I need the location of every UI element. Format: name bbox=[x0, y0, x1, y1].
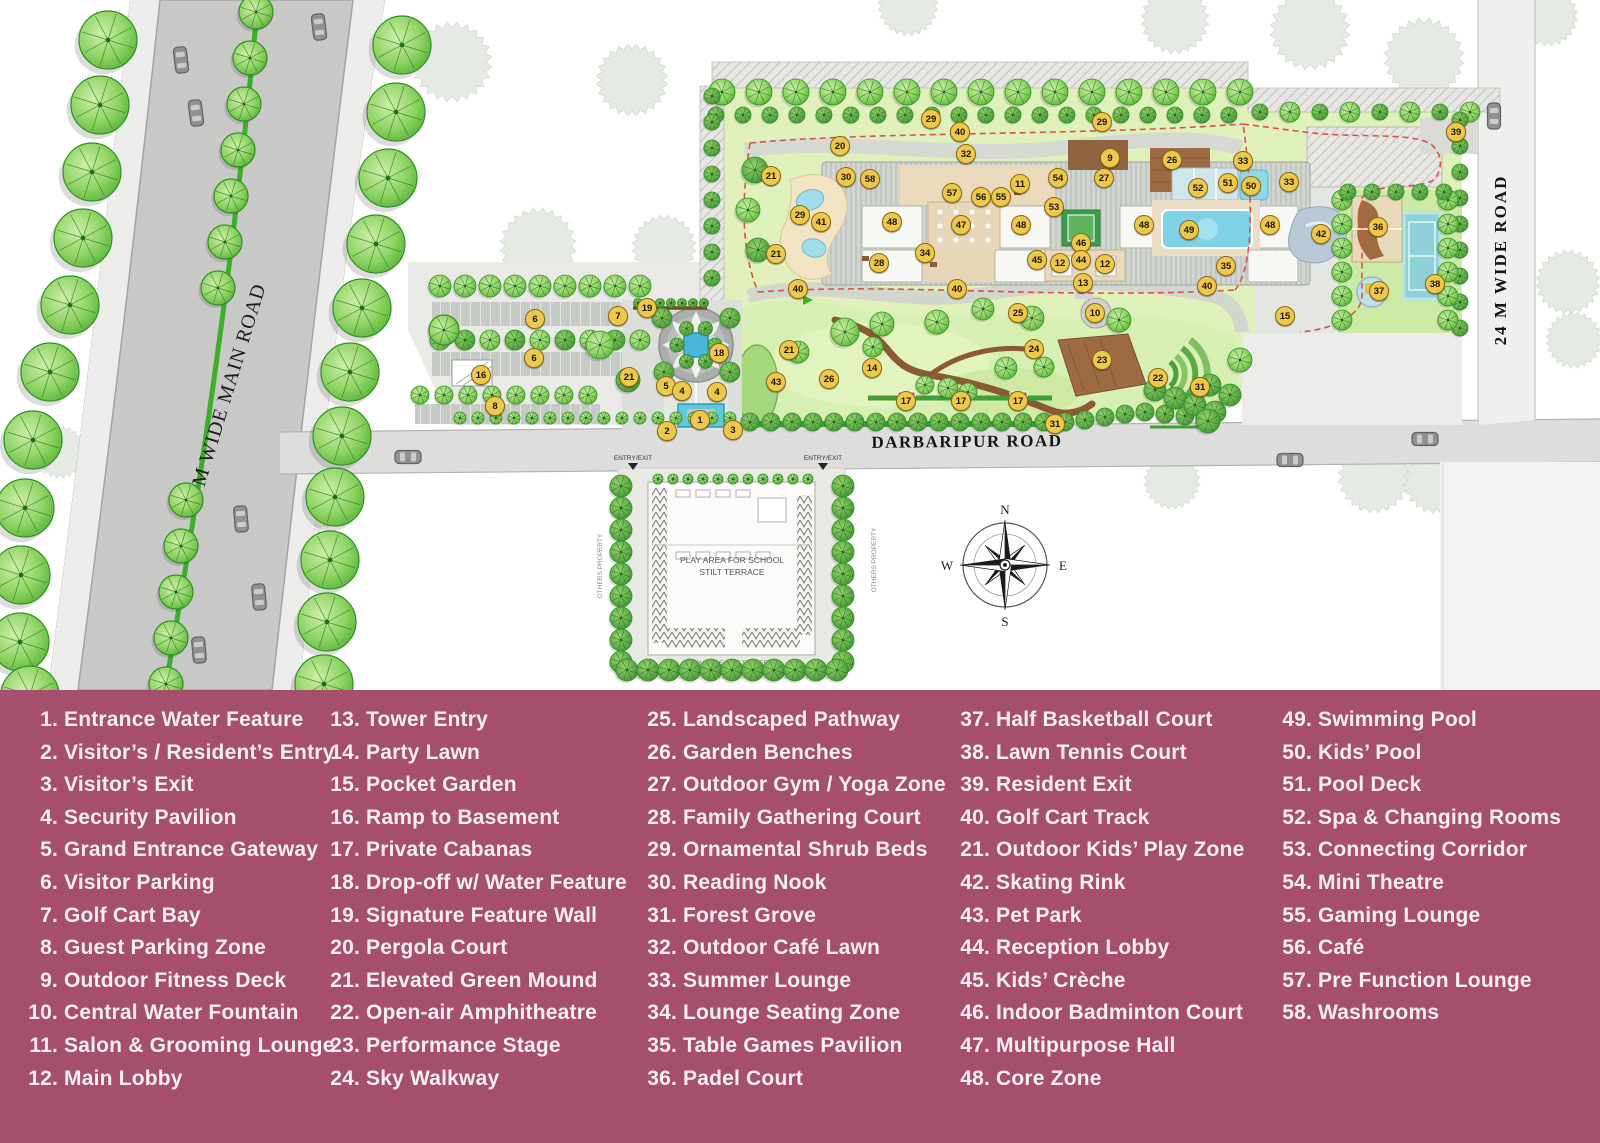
legend-item: 36.Padel Court bbox=[643, 1063, 956, 1096]
legend-item-number: 38. bbox=[956, 737, 990, 770]
legend-column-2: 13.Tower Entry14.Party Lawn15.Pocket Gar… bbox=[326, 704, 643, 1143]
legend-item-number: 43. bbox=[956, 900, 990, 933]
legend-item: 21.Elevated Green Mound bbox=[326, 965, 643, 998]
legend-item: 31.Forest Grove bbox=[643, 900, 956, 933]
site-plan-page: 60 M WIDE MAIN ROAD DARBARIPUR ROAD 24 M… bbox=[0, 0, 1600, 1143]
legend-item: 35.Table Games Pavilion bbox=[643, 1030, 956, 1063]
legend-item-label: Ramp to Basement bbox=[366, 802, 559, 835]
legend: 1.Entrance Water Feature2.Visitor’s / Re… bbox=[0, 690, 1600, 1143]
darbaripur-road-label: DARBARIPUR ROAD bbox=[871, 431, 1062, 452]
legend-item: 4.Security Pavilion bbox=[24, 802, 326, 835]
legend-item: 19.Signature Feature Wall bbox=[326, 900, 643, 933]
legend-item-label: Café bbox=[1318, 932, 1364, 965]
legend-item: 22.Open-air Amphitheatre bbox=[326, 997, 643, 1030]
legend-item-number: 2. bbox=[24, 737, 58, 770]
legend-item-number: 53. bbox=[1278, 834, 1312, 867]
legend-item-label: Garden Benches bbox=[683, 737, 853, 770]
legend-item-number: 22. bbox=[326, 997, 360, 1030]
legend-item-number: 36. bbox=[643, 1063, 677, 1096]
legend-item: 58.Washrooms bbox=[1278, 997, 1558, 1030]
legend-item-number: 37. bbox=[956, 704, 990, 737]
legend-item: 43.Pet Park bbox=[956, 900, 1278, 933]
legend-item: 27.Outdoor Gym / Yoga Zone bbox=[643, 769, 956, 802]
legend-item-label: Salon & Grooming Lounge bbox=[64, 1030, 335, 1063]
legend-item-number: 32. bbox=[643, 932, 677, 965]
others-property-label-west: OTHERS PROPERTY bbox=[597, 533, 604, 598]
legend-item: 45.Kids’ Crèche bbox=[956, 965, 1278, 998]
legend-item: 9.Outdoor Fitness Deck bbox=[24, 965, 326, 998]
legend-item-number: 42. bbox=[956, 867, 990, 900]
legend-item-number: 18. bbox=[326, 867, 360, 900]
legend-item-label: Outdoor Gym / Yoga Zone bbox=[683, 769, 946, 802]
legend-item: 21.Outdoor Kids’ Play Zone bbox=[956, 834, 1278, 867]
legend-item-number: 25. bbox=[643, 704, 677, 737]
legend-item-number: 28. bbox=[643, 802, 677, 835]
legend-item-label: Grand Entrance Gateway bbox=[64, 834, 318, 867]
legend-item-number: 58. bbox=[1278, 997, 1312, 1030]
legend-item-number: 5. bbox=[24, 834, 58, 867]
legend-item-label: Sky Walkway bbox=[366, 1063, 499, 1096]
legend-item-label: Summer Lounge bbox=[683, 965, 851, 998]
legend-item-number: 16. bbox=[326, 802, 360, 835]
compass-w: W bbox=[941, 558, 954, 573]
entry-exit-label-east: ENTRY/EXIT bbox=[804, 455, 842, 462]
legend-item-label: Kids’ Crèche bbox=[996, 965, 1126, 998]
legend-item-number: 49. bbox=[1278, 704, 1312, 737]
legend-item-label: Family Gathering Court bbox=[683, 802, 921, 835]
legend-item-label: Golf Cart Track bbox=[996, 802, 1150, 835]
legend-item-label: Pool Deck bbox=[1318, 769, 1421, 802]
legend-item-label: Outdoor Café Lawn bbox=[683, 932, 880, 965]
legend-item-label: Pocket Garden bbox=[366, 769, 517, 802]
legend-column-5: 49.Swimming Pool50.Kids’ Pool51.Pool Dec… bbox=[1278, 704, 1558, 1143]
legend-item-label: Visitor’s Exit bbox=[64, 769, 194, 802]
legend-item: 52.Spa & Changing Rooms bbox=[1278, 802, 1558, 835]
legend-item-number: 3. bbox=[24, 769, 58, 802]
legend-item-number: 31. bbox=[643, 900, 677, 933]
legend-item: 23.Performance Stage bbox=[326, 1030, 643, 1063]
legend-item-number: 45. bbox=[956, 965, 990, 998]
legend-item-label: Skating Rink bbox=[996, 867, 1126, 900]
legend-item: 12.Main Lobby bbox=[24, 1063, 326, 1096]
legend-item: 20.Pergola Court bbox=[326, 932, 643, 965]
legend-item: 8.Guest Parking Zone bbox=[24, 932, 326, 965]
legend-item-label: Elevated Green Mound bbox=[366, 965, 598, 998]
legend-item-number: 56. bbox=[1278, 932, 1312, 965]
legend-item: 47.Multipurpose Hall bbox=[956, 1030, 1278, 1063]
legend-item-number: 51. bbox=[1278, 769, 1312, 802]
site-plan-svg: 60 M WIDE MAIN ROAD DARBARIPUR ROAD 24 M… bbox=[0, 0, 1600, 690]
legend-item: 53.Connecting Corridor bbox=[1278, 834, 1558, 867]
legend-item-label: Pet Park bbox=[996, 900, 1082, 933]
legend-item-label: Reception Lobby bbox=[996, 932, 1169, 965]
legend-item-number: 9. bbox=[24, 965, 58, 998]
legend-item: 37.Half Basketball Court bbox=[956, 704, 1278, 737]
legend-item-label: Forest Grove bbox=[683, 900, 816, 933]
legend-item: 24.Sky Walkway bbox=[326, 1063, 643, 1096]
legend-item: 33.Summer Lounge bbox=[643, 965, 956, 998]
legend-item-label: Landscaped Pathway bbox=[683, 704, 900, 737]
legend-item-label: Drop-off w/ Water Feature bbox=[366, 867, 627, 900]
legend-item: 42.Skating Rink bbox=[956, 867, 1278, 900]
legend-item-label: Private Cabanas bbox=[366, 834, 532, 867]
legend-item: 10.Central Water Fountain bbox=[24, 997, 326, 1030]
legend-item-label: Table Games Pavilion bbox=[683, 1030, 903, 1063]
legend-item-number: 12. bbox=[24, 1063, 58, 1096]
legend-item: 18.Drop-off w/ Water Feature bbox=[326, 867, 643, 900]
side-road-label: 24 M WIDE ROAD bbox=[1491, 175, 1510, 346]
legend-item-label: Ornamental Shrub Beds bbox=[683, 834, 928, 867]
legend-item-number: 50. bbox=[1278, 737, 1312, 770]
legend-item: 38.Lawn Tennis Court bbox=[956, 737, 1278, 770]
legend-column-4: 37.Half Basketball Court38.Lawn Tennis C… bbox=[956, 704, 1278, 1143]
legend-item-number: 30. bbox=[643, 867, 677, 900]
legend-item-number: 44. bbox=[956, 932, 990, 965]
legend-column-3: 25.Landscaped Pathway26.Garden Benches27… bbox=[643, 704, 956, 1143]
legend-item-label: Signature Feature Wall bbox=[366, 900, 597, 933]
legend-item-label: Party Lawn bbox=[366, 737, 480, 770]
legend-item-label: Open-air Amphitheatre bbox=[366, 997, 597, 1030]
legend-item: 48.Core Zone bbox=[956, 1063, 1278, 1096]
legend-item-label: Lounge Seating Zone bbox=[683, 997, 900, 1030]
legend-item-label: Connecting Corridor bbox=[1318, 834, 1527, 867]
compass-n: N bbox=[1000, 502, 1010, 517]
legend-item: 49.Swimming Pool bbox=[1278, 704, 1558, 737]
legend-item-number: 4. bbox=[24, 802, 58, 835]
legend-item: 34.Lounge Seating Zone bbox=[643, 997, 956, 1030]
legend-item-number: 27. bbox=[643, 769, 677, 802]
legend-item: 28.Family Gathering Court bbox=[643, 802, 956, 835]
legend-item: 5.Grand Entrance Gateway bbox=[24, 834, 326, 867]
legend-item-label: Outdoor Fitness Deck bbox=[64, 965, 286, 998]
legend-item-label: Reading Nook bbox=[683, 867, 827, 900]
legend-item-number: 23. bbox=[326, 1030, 360, 1063]
legend-item-number: 52. bbox=[1278, 802, 1312, 835]
legend-item: 16.Ramp to Basement bbox=[326, 802, 643, 835]
legend-item-number: 20. bbox=[326, 932, 360, 965]
legend-item-label: Half Basketball Court bbox=[996, 704, 1213, 737]
compass-s: S bbox=[1001, 614, 1008, 629]
legend-item-label: Washrooms bbox=[1318, 997, 1439, 1030]
legend-item-label: Security Pavilion bbox=[64, 802, 237, 835]
legend-item-label: Multipurpose Hall bbox=[996, 1030, 1176, 1063]
compass-e: E bbox=[1059, 558, 1067, 573]
legend-item-number: 34. bbox=[643, 997, 677, 1030]
legend-item: 39.Resident Exit bbox=[956, 769, 1278, 802]
legend-item: 55.Gaming Lounge bbox=[1278, 900, 1558, 933]
legend-item-number: 54. bbox=[1278, 867, 1312, 900]
legend-item-label: Pergola Court bbox=[366, 932, 507, 965]
legend-item-number: 46. bbox=[956, 997, 990, 1030]
legend-item-number: 33. bbox=[643, 965, 677, 998]
legend-item-label: Core Zone bbox=[996, 1063, 1102, 1096]
legend-item-number: 13. bbox=[326, 704, 360, 737]
legend-item: 17.Private Cabanas bbox=[326, 834, 643, 867]
legend-item-number: 24. bbox=[326, 1063, 360, 1096]
legend-item-number: 10. bbox=[24, 997, 58, 1030]
legend-item: 51.Pool Deck bbox=[1278, 769, 1558, 802]
legend-item-label: Performance Stage bbox=[366, 1030, 561, 1063]
legend-item-number: 47. bbox=[956, 1030, 990, 1063]
legend-item: 7.Golf Cart Bay bbox=[24, 900, 326, 933]
legend-item-number: 11. bbox=[24, 1030, 58, 1063]
legend-item: 54.Mini Theatre bbox=[1278, 867, 1558, 900]
legend-item: 40.Golf Cart Track bbox=[956, 802, 1278, 835]
legend-item-label: Tower Entry bbox=[366, 704, 488, 737]
legend-item: 57.Pre Function Lounge bbox=[1278, 965, 1558, 998]
podium-building bbox=[780, 140, 1310, 299]
legend-item-label: Main Lobby bbox=[64, 1063, 183, 1096]
legend-item-number: 6. bbox=[24, 867, 58, 900]
legend-item: 44.Reception Lobby bbox=[956, 932, 1278, 965]
legend-item-label: Pre Function Lounge bbox=[1318, 965, 1532, 998]
legend-item: 3.Visitor’s Exit bbox=[24, 769, 326, 802]
legend-item: 50.Kids’ Pool bbox=[1278, 737, 1558, 770]
legend-item-number: 55. bbox=[1278, 900, 1312, 933]
legend-item: 13.Tower Entry bbox=[326, 704, 643, 737]
legend-item: 14.Party Lawn bbox=[326, 737, 643, 770]
legend-item-number: 26. bbox=[643, 737, 677, 770]
legend-item-label: Padel Court bbox=[683, 1063, 803, 1096]
legend-item: 46.Indoor Badminton Court bbox=[956, 997, 1278, 1030]
legend-item-label: Lawn Tennis Court bbox=[996, 737, 1187, 770]
legend-item: 11.Salon & Grooming Lounge bbox=[24, 1030, 326, 1063]
legend-item-number: 21. bbox=[326, 965, 360, 998]
legend-column-1: 1.Entrance Water Feature2.Visitor’s / Re… bbox=[24, 704, 326, 1143]
legend-item-label: Guest Parking Zone bbox=[64, 932, 266, 965]
legend-item-number: 40. bbox=[956, 802, 990, 835]
school-label-line2: STILT TERRACE bbox=[699, 567, 765, 577]
legend-item-label: Mini Theatre bbox=[1318, 867, 1444, 900]
legend-item-label: Swimming Pool bbox=[1318, 704, 1477, 737]
legend-item: 29.Ornamental Shrub Beds bbox=[643, 834, 956, 867]
legend-item-label: Central Water Fountain bbox=[64, 997, 299, 1030]
legend-item-number: 35. bbox=[643, 1030, 677, 1063]
legend-item: 56.Café bbox=[1278, 932, 1558, 965]
legend-item-number: 39. bbox=[956, 769, 990, 802]
legend-item-label: Resident Exit bbox=[996, 769, 1132, 802]
legend-item-number: 15. bbox=[326, 769, 360, 802]
legend-item-number: 29. bbox=[643, 834, 677, 867]
legend-item-number: 14. bbox=[326, 737, 360, 770]
legend-item: 26.Garden Benches bbox=[643, 737, 956, 770]
legend-item-label: Indoor Badminton Court bbox=[996, 997, 1243, 1030]
legend-item-label: Visitor Parking bbox=[64, 867, 215, 900]
legend-item-number: 57. bbox=[1278, 965, 1312, 998]
legend-item-number: 7. bbox=[24, 900, 58, 933]
legend-item: 6.Visitor Parking bbox=[24, 867, 326, 900]
legend-item-number: 21. bbox=[956, 834, 990, 867]
legend-item: 25.Landscaped Pathway bbox=[643, 704, 956, 737]
school-label-line1: PLAY AREA FOR SCHOOL bbox=[680, 555, 784, 565]
legend-item-number: 19. bbox=[326, 900, 360, 933]
entry-exit-label-west: ENTRY/EXIT bbox=[614, 455, 652, 462]
legend-item: 2.Visitor’s / Resident’s Entry bbox=[24, 737, 326, 770]
legend-item-label: Golf Cart Bay bbox=[64, 900, 201, 933]
legend-item-label: Kids’ Pool bbox=[1318, 737, 1422, 770]
legend-item-number: 8. bbox=[24, 932, 58, 965]
legend-item: 30.Reading Nook bbox=[643, 867, 956, 900]
legend-item-label: Spa & Changing Rooms bbox=[1318, 802, 1561, 835]
legend-item-number: 1. bbox=[24, 704, 58, 737]
master-plan-map: 60 M WIDE MAIN ROAD DARBARIPUR ROAD 24 M… bbox=[0, 0, 1600, 690]
others-property-label-east: OTHERS PROPERTY bbox=[871, 527, 878, 592]
legend-item-number: 17. bbox=[326, 834, 360, 867]
legend-item: 32.Outdoor Café Lawn bbox=[643, 932, 956, 965]
legend-item: 1.Entrance Water Feature bbox=[24, 704, 326, 737]
legend-item-label: Gaming Lounge bbox=[1318, 900, 1480, 933]
legend-item-number: 48. bbox=[956, 1063, 990, 1096]
legend-item-label: Outdoor Kids’ Play Zone bbox=[996, 834, 1244, 867]
legend-item-label: Visitor’s / Resident’s Entry bbox=[64, 737, 335, 770]
legend-item-label: Entrance Water Feature bbox=[64, 704, 303, 737]
legend-item: 15.Pocket Garden bbox=[326, 769, 643, 802]
